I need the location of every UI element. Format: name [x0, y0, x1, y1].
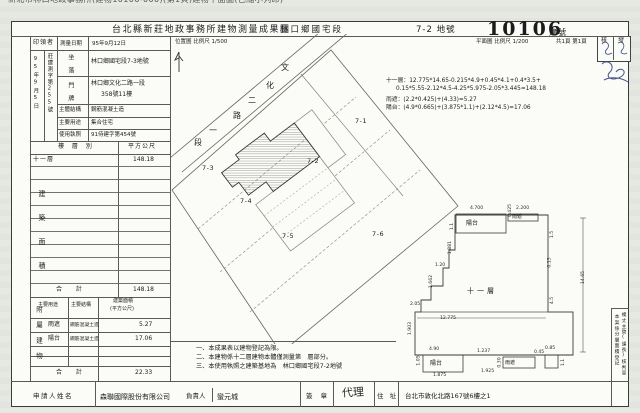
floor-row-area: 148.18	[133, 157, 154, 164]
dimension-label: 1.20	[435, 263, 445, 268]
lot-number-label: 7-6	[372, 230, 384, 238]
door-plate-line1: 林口鄉文化二路一段	[91, 81, 145, 88]
principal-label: 負責人	[186, 393, 206, 400]
dimension-label: 0.15	[548, 257, 553, 267]
area-column-header: 平方公尺	[128, 144, 156, 151]
door-plate-label: 門 牌	[66, 82, 73, 102]
floor-plan-label: 雨遮	[512, 213, 522, 220]
principal-name: 蠻元城	[217, 393, 238, 401]
door-plate-line2: 358號11樓	[101, 92, 132, 99]
main-use-value: 集合住宅	[91, 120, 113, 126]
plan-scale: 平面圖 比例尺 1/200	[476, 39, 528, 45]
floor-plan-label: 陽台	[430, 358, 442, 367]
lot-number-label: 7-2	[307, 157, 319, 165]
page-count: 共1頁 第1頁	[556, 39, 587, 45]
dimension-label: 1.925	[481, 369, 494, 374]
dimension-label: 12.775	[440, 316, 456, 321]
floor-row-floor: 十一層	[33, 157, 54, 164]
site-label: 坐 落	[66, 54, 73, 74]
annex-side-label: 附屬建物	[34, 306, 41, 374]
annex-row-structure: 鋼筋混凝土造	[70, 323, 99, 329]
side-box-left-column: 本案係分層面積登記	[613, 314, 619, 404]
dimension-label: 2.05	[410, 302, 420, 307]
lot-number-label: 7-4	[240, 197, 252, 205]
floor-total-area: 148.18	[133, 287, 154, 294]
agent-handwriting: 代理	[342, 386, 365, 400]
note-line-1: 一、本成果表以建物登記為限。	[196, 345, 283, 352]
formula-main-floor: 十一層：12.775*14.65-0.215*4.9+0.45*4.1+0.4*…	[386, 78, 541, 85]
structure-value: 鋼筋混凝土造	[91, 107, 124, 113]
dimension-label: 1.875	[433, 373, 446, 378]
formula-canopy: 雨遮：(2.2*0.425)+(4.33)=5.27	[386, 97, 477, 104]
applicant-company: 森聯國際股份有限公司	[100, 393, 170, 401]
road-name-char: 一	[209, 125, 217, 136]
address-label: 住 址	[377, 393, 398, 400]
signature-scribble-icon	[594, 38, 634, 88]
floor-column-header: 樓 層 別	[58, 144, 95, 151]
annex-row-structure: 鋼筋混凝土造	[70, 337, 99, 343]
road-name-char: 文	[281, 62, 289, 73]
main-use-label: 主要用途	[59, 120, 81, 126]
dimension-label: 1.662	[429, 275, 434, 288]
dimension-label: 0.30	[498, 357, 503, 367]
recipient-label: 印領者	[33, 40, 54, 47]
road-name-char: 路	[233, 110, 241, 121]
floor-total-label: 合 計	[56, 287, 88, 294]
dimension-label: 1.237	[477, 349, 490, 354]
annex-row-use: 雨遮	[48, 322, 60, 329]
dimension-label: 1.881	[448, 241, 453, 254]
side-box-right-column: 複丈主管(課長)核判章	[620, 312, 626, 404]
survey-date-value: 95年9月12日	[92, 41, 126, 47]
floor-table-empty-rows	[30, 154, 170, 284]
annex-col-area-line2: (平方公尺)	[110, 307, 134, 313]
dimension-label: 1.5	[550, 231, 555, 238]
annex-col-area-line1: 建築面積	[113, 299, 133, 305]
dimension-label: 0.45	[534, 350, 544, 355]
structure-label: 主體結構	[59, 107, 81, 113]
dimension-label: 4.5	[550, 297, 555, 304]
floor-plan-label: 十一層	[467, 286, 497, 296]
dimension-label: 4.90	[429, 347, 439, 352]
scanned-survey-document: 新北市林口地政事務所(建物10106-000)(第1頁)建物平面圖(已縮小列印)…	[0, 0, 640, 413]
license-value: 91侍建字第454號	[91, 132, 136, 138]
dimension-label: 2.200	[516, 206, 529, 211]
annex-row-area: 5.27	[139, 322, 152, 329]
building-area-side-label: 建築面積	[38, 190, 46, 290]
note-line-3: 三、本使用執照之建築基地為 林口鄉國宅段7-2地號	[196, 363, 342, 370]
floor-plan-label: 雨遮	[505, 359, 515, 366]
dimension-label: 1.05	[417, 355, 422, 365]
dimension-label: 0.85	[545, 346, 555, 351]
road-name-char: 段	[194, 137, 202, 148]
signature-label: 簽 章	[306, 393, 330, 400]
dimension-label: 4.700	[470, 206, 483, 211]
road-name-char: 二	[248, 95, 256, 106]
lot-number-label: 7-1	[355, 117, 367, 125]
annex-row-use: 陽台	[48, 336, 60, 343]
annex-total-area: 22.33	[135, 370, 152, 377]
survey-date-label: 測量日期	[60, 41, 82, 47]
applicant-name-label: 申請人姓名	[33, 393, 73, 400]
address-value: 台北市敦化北路167號6樓之1	[405, 393, 491, 400]
site-value: 林口鄉國宅段7-3地號	[91, 59, 149, 66]
annex-row-area: 17.06	[135, 336, 152, 343]
floor-plan-label: 陽台	[466, 218, 478, 227]
lot-number-label: 7-5	[282, 232, 294, 240]
dimension-label: 1.1	[561, 359, 566, 366]
lot-number-label: 7-3	[202, 164, 214, 172]
annex-col-structure: 主要結構	[71, 303, 91, 309]
print-watermark: 新北市林口地政事務所(建物10106-000)(第1頁)建物平面圖(已縮小列印)	[8, 0, 283, 4]
dimension-label: 1.1	[450, 223, 455, 230]
formula-balcony: 陽台：(4.9*0.665)+(3.875*1.1)+(2.12*4.5)=17…	[386, 105, 531, 112]
dimension-label: 14.65	[581, 271, 586, 284]
license-label: 使用執照	[59, 132, 81, 138]
annex-col-use: 主要用途	[38, 303, 58, 309]
formula-main-floor-cont: 0.15*5.55-2.12*4.5-4.25*5.975-2.05*3.445…	[396, 86, 546, 93]
note-line-2: 二、本建物係十二層建物本體僅測量第 層部分。	[196, 354, 332, 361]
dimension-label: 0.425	[508, 204, 513, 217]
dimension-label: 1.903	[408, 322, 413, 335]
case-number-vertical: 莊建測字第255號	[46, 53, 52, 139]
road-name-char: 化	[266, 80, 274, 91]
receive-date-vertical: 95年9月5日	[32, 56, 38, 138]
annex-total-label: 合 計	[56, 370, 88, 377]
